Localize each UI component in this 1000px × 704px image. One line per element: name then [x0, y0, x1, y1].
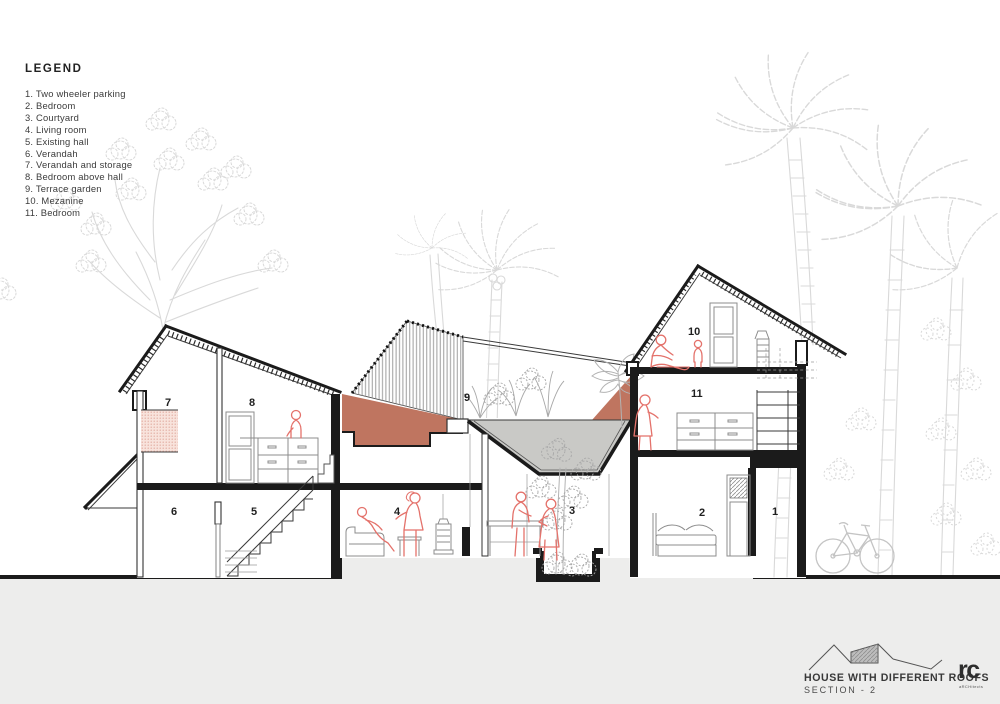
bicycle	[816, 523, 894, 573]
dresser-room11	[677, 413, 753, 450]
label-room-5: 5	[251, 506, 257, 518]
double-door	[226, 412, 254, 483]
legend-item: 1. Two wheeler parking	[25, 88, 132, 100]
partition-7-8	[217, 348, 222, 483]
terrace-plants	[464, 368, 564, 418]
architectural-section-sheet: 7 8 9 10 11 6 5 4 3 2 1 LEGEND 1. Two wh…	[0, 0, 1000, 704]
legend: LEGEND 1. Two wheeler parking 2. Bedroom…	[25, 63, 132, 219]
right-palm-3	[889, 199, 1000, 575]
bay-beam	[750, 457, 805, 468]
firm-logo: rc	[958, 659, 979, 681]
legend-item: 11. Bedroom	[25, 207, 132, 219]
sheet-title: SECTION - 2	[804, 685, 877, 695]
door-6-5	[216, 524, 220, 577]
screen-wall	[141, 410, 178, 452]
label-room-6: 6	[171, 506, 177, 518]
mezzanine-slab	[633, 367, 805, 374]
legend-item: 9. Terrace garden	[25, 183, 132, 195]
label-room-3: 3	[569, 505, 575, 517]
label-room-10: 10	[688, 326, 700, 338]
legend-title: LEGEND	[25, 63, 132, 75]
legend-item: 8. Bedroom above hall	[25, 171, 132, 183]
partition-4-3	[482, 434, 488, 556]
partition-2-1	[748, 468, 756, 556]
label-room-7: 7	[165, 397, 171, 409]
title-block: HOUSE WITH DIFFERENT ROOFS SECTION - 2 r…	[800, 641, 995, 701]
mezzanine-door	[710, 303, 737, 367]
parapet	[447, 419, 468, 433]
label-room-9: 9	[464, 392, 470, 404]
label-room-4: 4	[394, 506, 401, 518]
legend-item: 2. Bedroom	[25, 100, 132, 112]
first-floor-slab	[137, 483, 340, 490]
room11-floor-slab	[633, 450, 805, 457]
small-palm	[395, 212, 469, 335]
half-wall	[462, 527, 470, 556]
room4-ceiling-slab	[340, 483, 488, 490]
firm-name: aRCHitects	[959, 684, 983, 689]
roofline-logo	[803, 642, 953, 672]
legend-item: 3. Courtyard	[25, 112, 132, 124]
section-drawing: 7 8 9 10 11 6 5 4 3 2 1	[0, 0, 1000, 704]
ridge-post	[796, 341, 807, 365]
legend-item: 5. Existing hall	[25, 136, 132, 148]
legend-item: 10. Mezanine	[25, 195, 132, 207]
label-room-1: 1	[772, 506, 778, 518]
right-wall	[797, 365, 806, 577]
label-room-2: 2	[699, 507, 705, 519]
label-room-8: 8	[249, 397, 255, 409]
legend-item: 4. Living room	[25, 124, 132, 136]
legend-item: 6. Verandah	[25, 148, 132, 160]
partition-6-5	[215, 502, 221, 524]
left-wall	[630, 367, 638, 577]
legend-item: 7. Verandah and storage	[25, 159, 132, 171]
right-wall	[331, 394, 340, 578]
courtyard-planter	[533, 548, 603, 576]
label-room-11: 11	[691, 388, 703, 400]
